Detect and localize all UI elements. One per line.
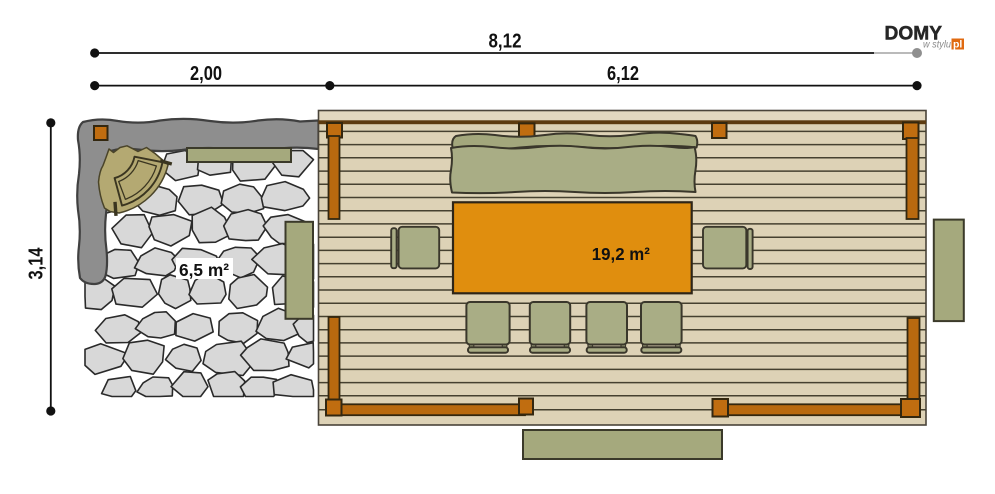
svg-text:19,2 m²: 19,2 m²	[592, 244, 650, 264]
svg-text:w stylu: w stylu	[923, 40, 951, 51]
svg-text:3,14: 3,14	[26, 247, 48, 280]
svg-text:6,5 m²: 6,5 m²	[179, 260, 229, 280]
svg-text:6,12: 6,12	[607, 63, 639, 85]
svg-text:8,12: 8,12	[489, 31, 522, 53]
svg-text:2,00: 2,00	[190, 63, 222, 85]
svg-text:pl: pl	[953, 39, 962, 51]
